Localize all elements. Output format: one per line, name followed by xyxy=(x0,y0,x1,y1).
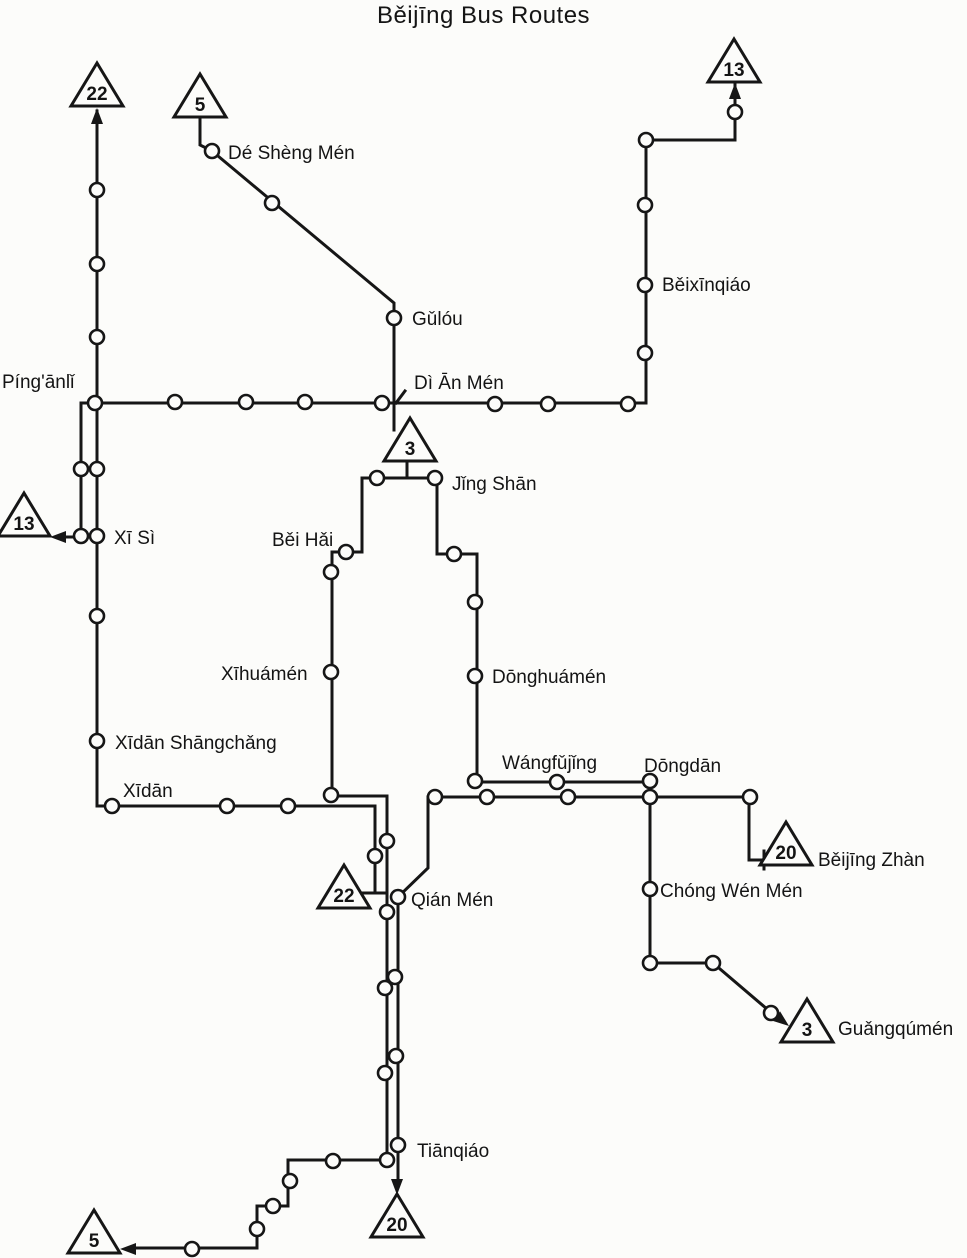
station-dot xyxy=(743,790,757,804)
route-3-line-3 xyxy=(437,478,774,1015)
station-label-xi-si: Xī Sì xyxy=(114,528,155,549)
station-dot xyxy=(90,183,104,197)
route-20-line-1 xyxy=(398,797,766,1181)
station-gulou xyxy=(387,311,401,325)
station-xidan xyxy=(105,799,119,813)
station-label-de-sheng-men: Dé Shèng Mén xyxy=(228,143,355,164)
station-pinganli xyxy=(88,396,102,410)
station-xi-si xyxy=(90,529,104,543)
station-label-beixinqiao: Běixīnqiáo xyxy=(662,275,751,296)
di-an-men-leader xyxy=(396,391,405,403)
station-donghuamen xyxy=(468,669,482,683)
route-5-line-1 xyxy=(200,118,394,430)
station-dot xyxy=(561,790,575,804)
station-dot xyxy=(220,799,234,813)
station-beixinqiao xyxy=(638,278,652,292)
route-number-13-west: 13 xyxy=(13,514,34,535)
station-dot xyxy=(380,834,394,848)
station-di-an-men xyxy=(375,396,389,410)
station-label-jing-shan: Jǐng Shān xyxy=(452,474,537,495)
station-label-dongdan: Dōngdān xyxy=(644,756,721,777)
station-wangfujing xyxy=(550,775,564,789)
arrow-route-5-south xyxy=(120,1243,136,1255)
station-dot xyxy=(468,595,482,609)
station-dot xyxy=(324,565,338,579)
route-number-20-beijing-zhan: 20 xyxy=(775,843,796,864)
station-dot xyxy=(638,198,652,212)
station-dot xyxy=(326,1154,340,1168)
station-dot xyxy=(74,462,88,476)
station-dot xyxy=(283,1174,297,1188)
station-dot xyxy=(281,799,295,813)
station-dot xyxy=(370,471,384,485)
arrow-route-13-west xyxy=(50,531,66,543)
station-jing-shan xyxy=(428,471,442,485)
route-number-5-south: 5 xyxy=(89,1231,100,1252)
station-de-sheng-men xyxy=(205,144,219,158)
arrow-route-22-north xyxy=(91,108,103,124)
station-label-guangqumen: Guǎngqúmén xyxy=(838,1019,953,1040)
route-number-13-northeast: 13 xyxy=(723,60,744,81)
route-number-3-central: 3 xyxy=(405,439,416,460)
station-chong-wen-men xyxy=(643,882,657,896)
station-dot xyxy=(90,462,104,476)
station-dot xyxy=(643,956,657,970)
station-dot xyxy=(638,346,652,360)
beijing-bus-routes-map: { "title": "Běijīng Bus Routes", "map": … xyxy=(0,0,967,1258)
station-dot xyxy=(368,849,382,863)
station-dot xyxy=(764,1006,778,1020)
station-label-pinganli: Píng'ānlǐ xyxy=(2,372,76,393)
station-label-chong-wen-men: Chóng Wén Mén xyxy=(660,881,803,902)
station-dot xyxy=(298,395,312,409)
bus-route-diagram: 2251313322203205Dé Shèng MénGǔlóuDì Ān M… xyxy=(0,0,967,1258)
station-dot xyxy=(643,790,657,804)
route-number-20-south: 20 xyxy=(386,1215,407,1236)
station-dot xyxy=(185,1242,199,1256)
station-dot xyxy=(266,1199,280,1213)
station-dot xyxy=(90,257,104,271)
station-label-xidan: Xīdān xyxy=(123,781,173,802)
station-dot xyxy=(74,529,88,543)
station-dot xyxy=(706,956,720,970)
station-dot xyxy=(728,105,742,119)
station-qian-men xyxy=(391,890,405,904)
station-dot xyxy=(250,1222,264,1236)
route-13-line-1 xyxy=(63,85,735,537)
station-label-tianqiao: Tiānqiáo xyxy=(417,1141,489,1162)
station-dot xyxy=(90,330,104,344)
station-dot xyxy=(380,905,394,919)
station-dot xyxy=(639,133,653,147)
station-dot xyxy=(380,1153,394,1167)
station-label-xihuamen: Xīhuámén xyxy=(221,664,308,685)
station-label-gulou: Gǔlóu xyxy=(412,309,463,330)
station-dot xyxy=(447,547,461,561)
station-xidan-shangchang xyxy=(90,734,104,748)
station-label-xidan-shangchang: Xīdān Shāngchǎng xyxy=(115,733,277,754)
station-dot xyxy=(428,790,442,804)
station-dot xyxy=(324,788,338,802)
station-dot xyxy=(621,397,635,411)
station-dot xyxy=(541,397,555,411)
station-xihuamen xyxy=(324,665,338,679)
station-label-donghuamen: Dōnghuámén xyxy=(492,667,606,688)
station-dot xyxy=(265,196,279,210)
arrow-route-13-north xyxy=(729,83,741,99)
station-label-wangfujing: Wángfǔjǐng xyxy=(502,753,597,774)
station-label-beijing-zhan: Běijīng Zhàn xyxy=(818,850,925,871)
station-label-di-an-men: Dì Ān Mén xyxy=(414,373,504,394)
station-dot xyxy=(480,790,494,804)
route-number-22-south: 22 xyxy=(333,886,354,907)
station-label-qian-men: Qián Mén xyxy=(411,890,493,911)
station-dot xyxy=(468,774,482,788)
station-dot xyxy=(168,395,182,409)
station-tianqiao xyxy=(391,1138,405,1152)
station-label-bei-hai: Běi Hǎi xyxy=(272,530,333,551)
station-dot xyxy=(378,1066,392,1080)
route-number-5-north: 5 xyxy=(195,95,206,116)
station-dot xyxy=(388,970,402,984)
route-number-3-guangqumen: 3 xyxy=(802,1020,813,1041)
station-bei-hai xyxy=(339,545,353,559)
station-dot xyxy=(90,609,104,623)
route-5-line-2 xyxy=(133,478,387,1248)
station-dot xyxy=(488,397,502,411)
route-number-22-north: 22 xyxy=(86,84,107,105)
station-dot xyxy=(389,1049,403,1063)
station-dot xyxy=(239,395,253,409)
